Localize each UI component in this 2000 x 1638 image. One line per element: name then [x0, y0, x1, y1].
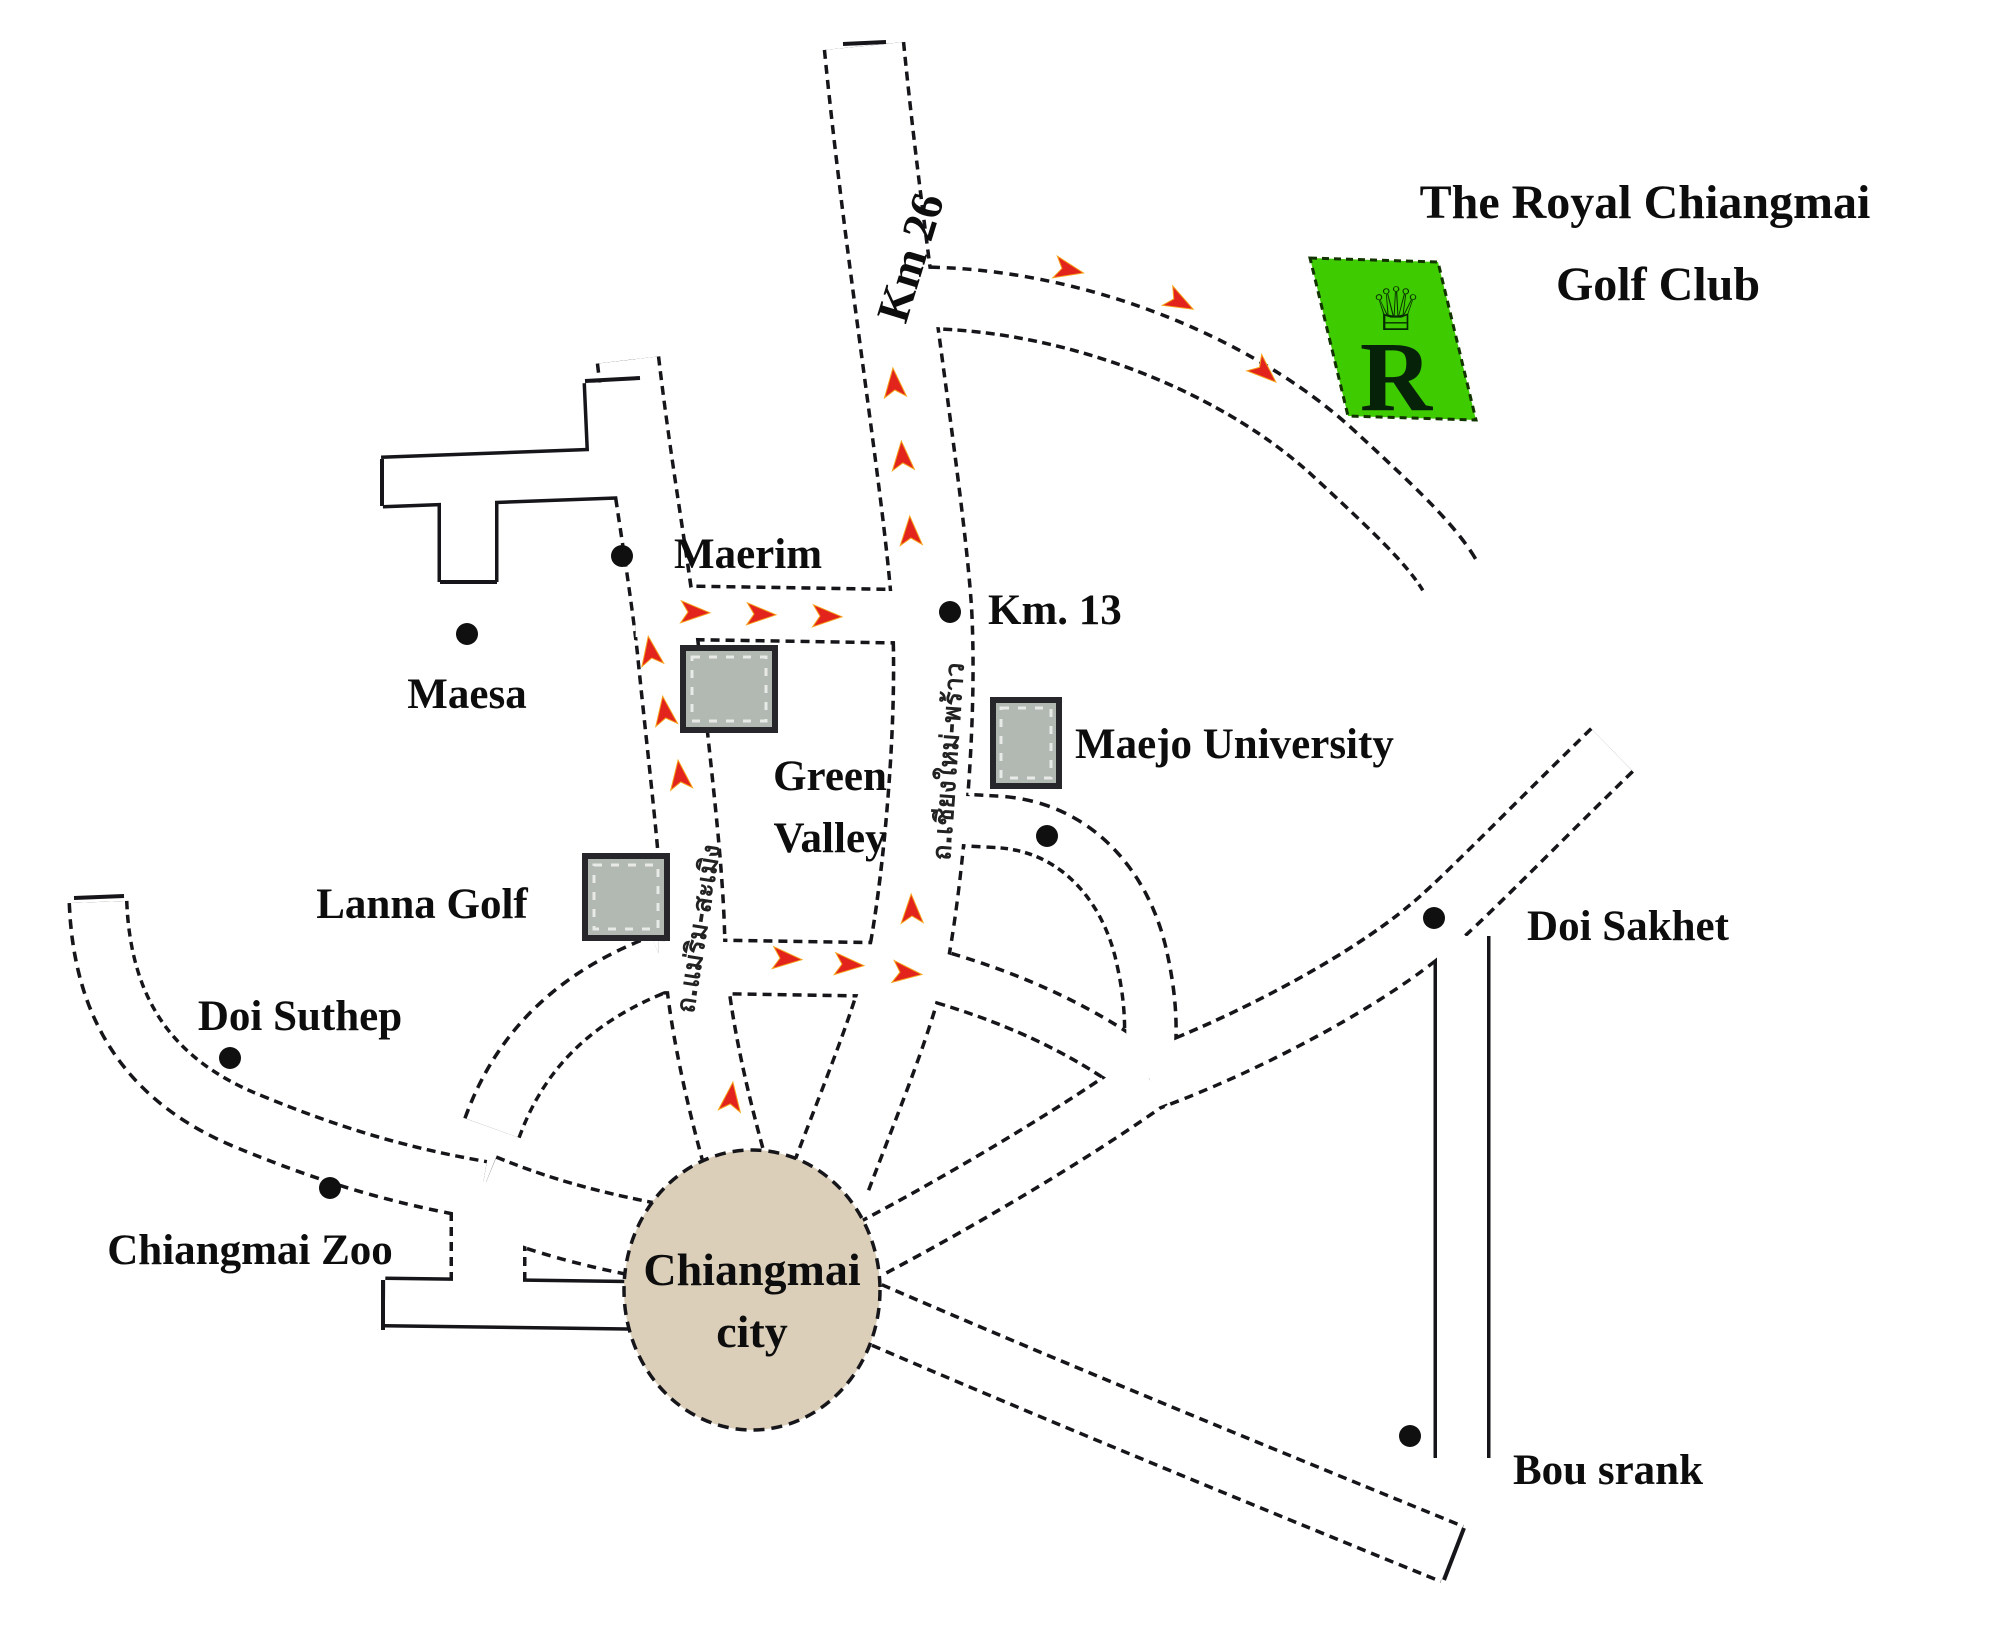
route-arrow-icon	[1053, 256, 1086, 284]
maejo-university-label: Maejo University	[1075, 721, 1394, 768]
chiangmai-zoo-dot	[319, 1177, 341, 1199]
green-valley-square	[683, 648, 775, 730]
logo-letter-r: R	[1360, 321, 1434, 432]
maerim-label: Maerim	[674, 531, 822, 578]
maejo-university-dot	[1036, 825, 1058, 847]
map-canvas: Chiangmai city ♕ R	[0, 0, 2000, 1638]
doi-suthep-label: Doi Suthep	[198, 993, 402, 1040]
bou-srank-dot	[1399, 1425, 1421, 1447]
bou-srank-label: Bou srank	[1513, 1447, 1703, 1494]
doi-sakhet-label: Doi Sakhet	[1527, 903, 1730, 950]
city-label-line1: Chiangmai	[643, 1244, 860, 1295]
doi-sakhet-dot	[1423, 907, 1445, 929]
chiangmai-zoo-label: Chiangmai Zoo	[107, 1227, 393, 1274]
maesa-label: Maesa	[407, 671, 526, 718]
lanna-golf-label: Lanna Golf	[316, 881, 528, 928]
map-title-line1: The Royal Chiangmai	[1420, 176, 1871, 229]
city-label-line2: city	[716, 1306, 788, 1357]
green-valley-label-line2: Valley	[773, 815, 887, 862]
km13-dot	[939, 601, 961, 623]
km13-label: Km. 13	[988, 587, 1122, 634]
lanna-golf-square	[585, 856, 667, 938]
route-arrow-icon	[1162, 286, 1198, 319]
golf-club-route-map: Chiangmai city ♕ R	[0, 0, 2000, 1638]
maesa-dot	[456, 623, 478, 645]
golf-club-logo: ♕ R	[1310, 258, 1476, 432]
maejo-university-square	[993, 700, 1059, 786]
maerim-dot	[611, 545, 633, 567]
green-valley-label-line1: Green	[773, 753, 887, 800]
doi-suthep-dot	[219, 1047, 241, 1069]
map-title-line2: Golf Club	[1556, 258, 1760, 311]
